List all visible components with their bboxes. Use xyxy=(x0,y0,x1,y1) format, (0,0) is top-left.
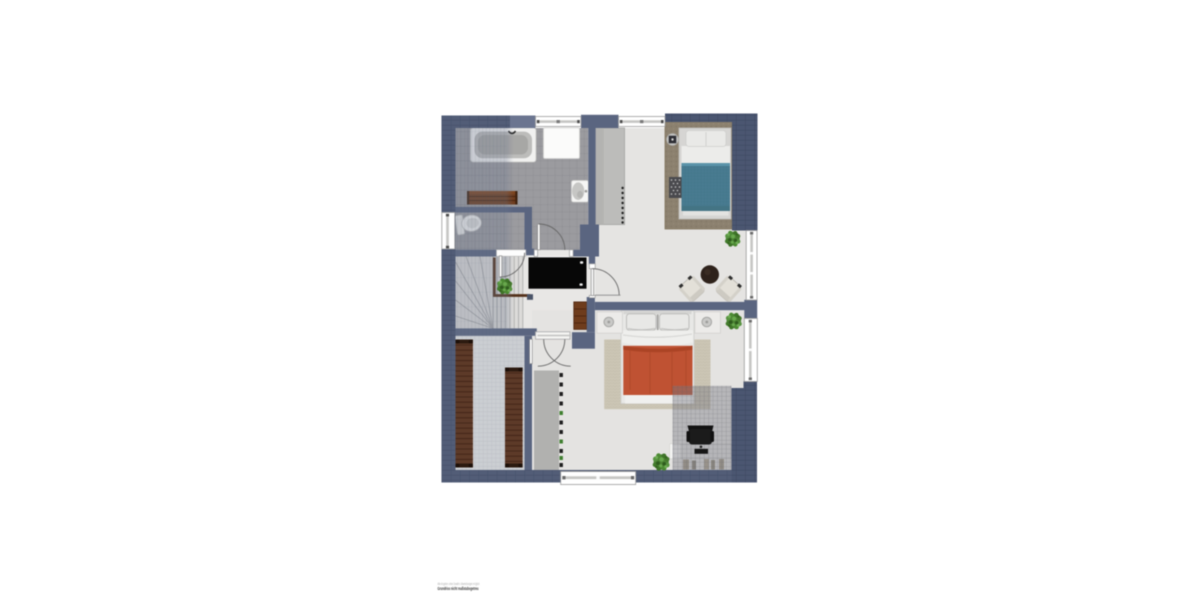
svg-text:Grundriss nicht maßstabsgetreu: Grundriss nicht maßstabsgetreu xyxy=(438,586,479,591)
